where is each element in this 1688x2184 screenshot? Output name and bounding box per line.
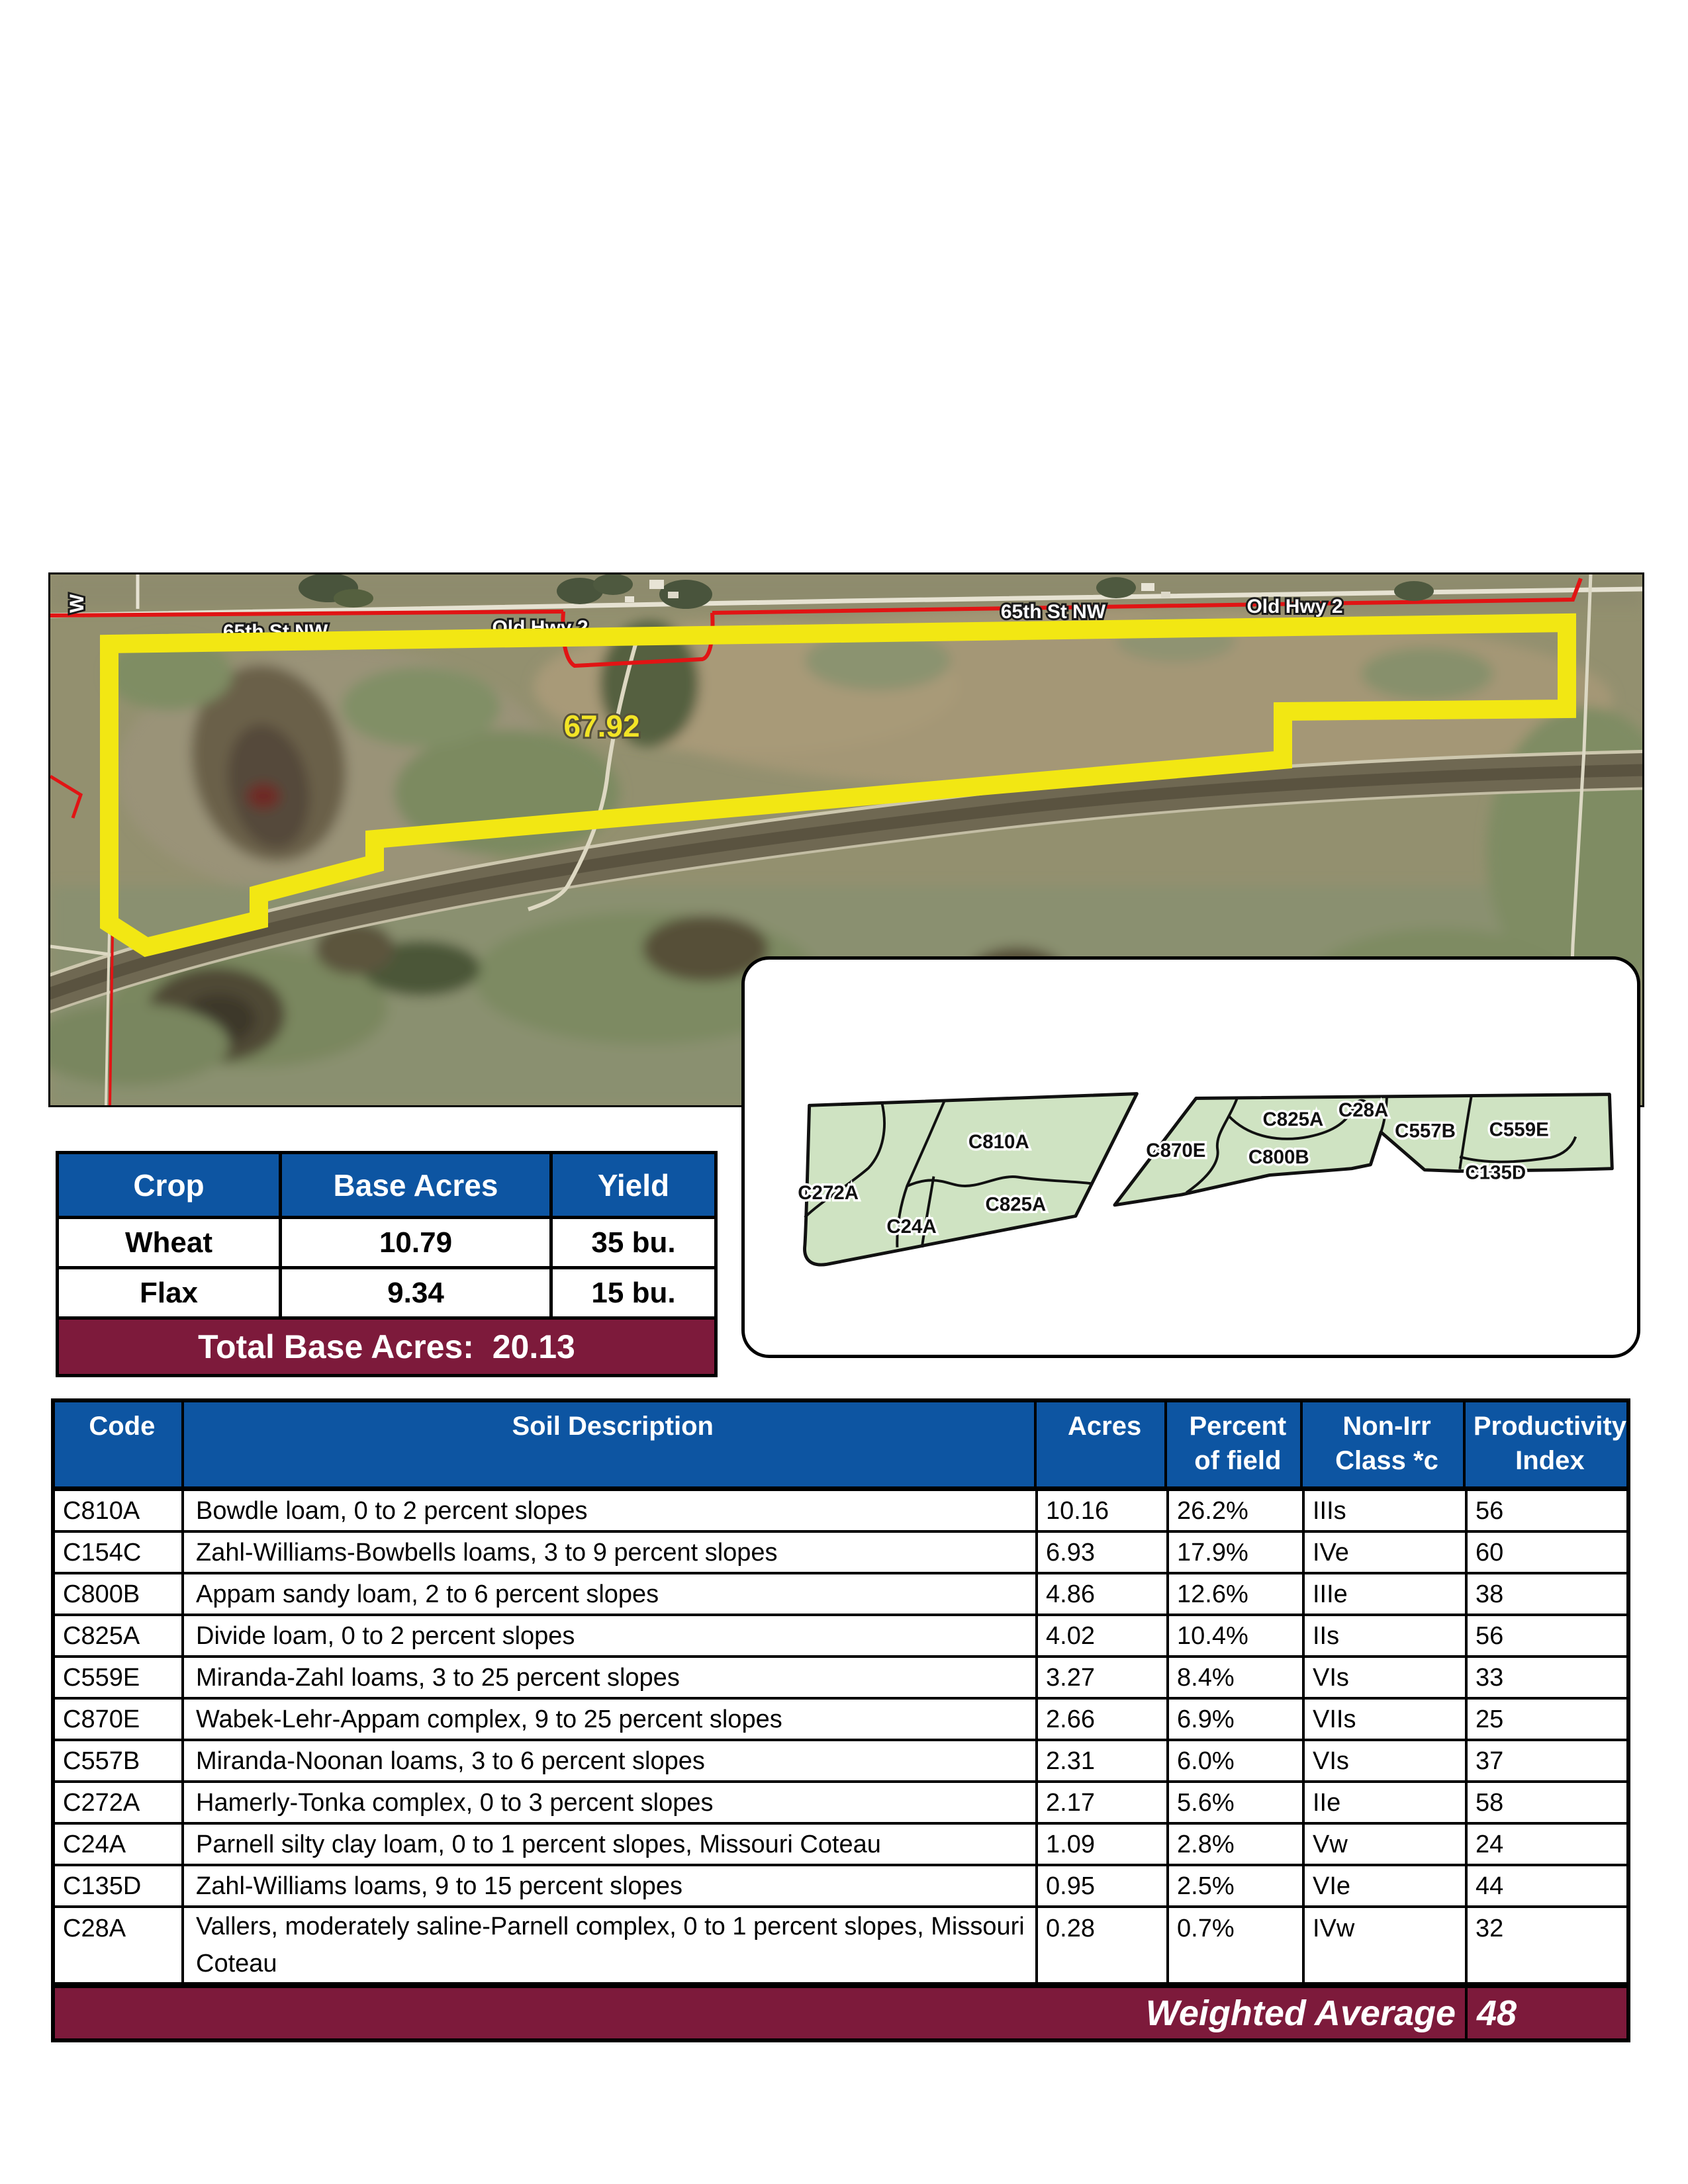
cell-nonirr-class: VIs <box>1305 1658 1468 1697</box>
map-label-c135d: C135D <box>1465 1161 1526 1183</box>
soil-header-percent: Percent of field <box>1167 1402 1303 1486</box>
cell-nonirr-class: IIIe <box>1305 1574 1468 1614</box>
cell-description: Appam sandy loam, 2 to 6 percent slopes <box>184 1574 1038 1614</box>
cell-acres: 4.02 <box>1038 1616 1169 1655</box>
cell-description: Wabek-Lehr-Appam complex, 9 to 25 percen… <box>184 1700 1038 1739</box>
cell-description: Miranda-Noonan loams, 3 to 6 percent slo… <box>184 1741 1038 1780</box>
cell-acres: 4.86 <box>1038 1574 1169 1614</box>
cell-description: Divide loam, 0 to 2 percent slopes <box>184 1616 1038 1655</box>
crop-table-header: Crop Base Acres Yield <box>59 1154 714 1219</box>
cell-productivity: 38 <box>1468 1574 1626 1614</box>
cell-code: C810A <box>55 1491 184 1530</box>
weighted-average-value: 48 <box>1468 1988 1626 2038</box>
cell-acres: 3.27 <box>1038 1658 1169 1697</box>
soil-header-acres: Acres <box>1037 1402 1168 1486</box>
cell-productivity: 56 <box>1468 1616 1626 1655</box>
cell-code: C28A <box>55 1908 184 1982</box>
weighted-average-bar: Weighted Average 48 <box>55 1985 1626 2038</box>
soil-header-description: Soil Description <box>184 1402 1037 1486</box>
crop-header-crop: Crop <box>59 1154 282 1216</box>
crop-row-flax: Flax 9.34 15 bu. <box>59 1269 714 1320</box>
cell-percent: 26.2% <box>1169 1491 1305 1530</box>
cell-acres: 0.28 <box>1038 1908 1169 1982</box>
cell-nonirr-class: IVe <box>1305 1533 1468 1572</box>
cell-percent: 0.7% <box>1169 1908 1305 1982</box>
cell-productivity: 32 <box>1468 1908 1626 1982</box>
cell-percent: 12.6% <box>1169 1574 1305 1614</box>
cell-description: Hamerly-Tonka complex, 0 to 3 percent sl… <box>184 1783 1038 1822</box>
cell-yield: 15 bu. <box>553 1269 714 1316</box>
cell-description: Zahl-Williams loams, 9 to 15 percent slo… <box>184 1866 1038 1905</box>
cell-acres: 2.17 <box>1038 1783 1169 1822</box>
crop-row-wheat: Wheat 10.79 35 bu. <box>59 1219 714 1269</box>
cell-productivity: 58 <box>1468 1783 1626 1822</box>
cell-acres: 10.16 <box>1038 1491 1169 1530</box>
cell-code: C559E <box>55 1658 184 1697</box>
cell-productivity: 33 <box>1468 1658 1626 1697</box>
cell-percent: 5.6% <box>1169 1783 1305 1822</box>
cell-productivity: 56 <box>1468 1491 1626 1530</box>
cell-base-acres: 9.34 <box>282 1269 553 1316</box>
cell-description: Bowdle loam, 0 to 2 percent slopes <box>184 1491 1038 1530</box>
map-label-c28a: C28A <box>1338 1099 1388 1121</box>
soil-table-row: C559E Miranda-Zahl loams, 3 to 25 percen… <box>55 1658 1626 1700</box>
cell-description: Vallers, moderately saline-Parnell compl… <box>184 1908 1038 1982</box>
cell-description: Zahl-Williams-Bowbells loams, 3 to 9 per… <box>184 1533 1038 1572</box>
cell-acres: 2.66 <box>1038 1700 1169 1739</box>
soil-table-row: C557B Miranda-Noonan loams, 3 to 6 perce… <box>55 1741 1626 1783</box>
soil-table-row: C135D Zahl-Williams loams, 9 to 15 perce… <box>55 1866 1626 1908</box>
total-base-acres-bar: Total Base Acres: 20.13 <box>59 1320 714 1374</box>
cell-percent: 6.0% <box>1169 1741 1305 1780</box>
map-label-c870e: C870E <box>1146 1140 1205 1161</box>
cell-crop: Wheat <box>59 1219 282 1266</box>
soil-header-productivity: Productivity Index <box>1466 1402 1626 1486</box>
map-label-c559e: C559E <box>1489 1119 1549 1141</box>
soil-table-row: C24A Parnell silty clay loam, 0 to 1 per… <box>55 1825 1626 1866</box>
cell-code: C272A <box>55 1783 184 1822</box>
cell-base-acres: 10.79 <box>282 1219 553 1266</box>
soil-table-row: C272A Hamerly-Tonka complex, 0 to 3 perc… <box>55 1783 1626 1825</box>
cell-acres: 1.09 <box>1038 1825 1169 1864</box>
cell-acres: 2.31 <box>1038 1741 1169 1780</box>
soil-description-table: Code Soil Description Acres Percent of f… <box>51 1398 1630 2042</box>
cell-code: C154C <box>55 1533 184 1572</box>
soil-map-inset: C272A C810A C24A C825A C870E C825A C28A … <box>741 956 1640 1358</box>
cell-percent: 10.4% <box>1169 1616 1305 1655</box>
weighted-average-label: Weighted Average <box>55 1988 1468 2038</box>
cell-code: C870E <box>55 1700 184 1739</box>
cell-nonirr-class: IIe <box>1305 1783 1468 1822</box>
cell-productivity: 24 <box>1468 1825 1626 1864</box>
cell-acres: 6.93 <box>1038 1533 1169 1572</box>
road-label-old-hwy-right: Old Hwy 2 <box>1246 596 1342 617</box>
map-label-c24a: C24A <box>886 1216 936 1238</box>
cell-percent: 8.4% <box>1169 1658 1305 1697</box>
soil-header-nonirr-class: Non-Irr Class *c <box>1303 1402 1466 1486</box>
cell-productivity: 25 <box>1468 1700 1626 1739</box>
crop-base-acres-table: Crop Base Acres Yield Wheat 10.79 35 bu.… <box>56 1151 718 1377</box>
soil-table-row: C870E Wabek-Lehr-Appam complex, 9 to 25 … <box>55 1700 1626 1741</box>
cell-nonirr-class: IVw <box>1305 1908 1468 1982</box>
field-acreage-label: 67.92 <box>563 709 639 743</box>
cell-nonirr-class: VIe <box>1305 1866 1468 1905</box>
map-label-c825a-left: C825A <box>986 1194 1047 1216</box>
cell-percent: 2.5% <box>1169 1866 1305 1905</box>
road-label-edge-partial: W <box>66 594 88 613</box>
soil-table-row: C825A Divide loam, 0 to 2 percent slopes… <box>55 1616 1626 1658</box>
cell-productivity: 44 <box>1468 1866 1626 1905</box>
cell-percent: 6.9% <box>1169 1700 1305 1739</box>
map-label-c810a: C810A <box>968 1131 1029 1153</box>
map-label-c825a-right: C825A <box>1262 1109 1323 1130</box>
report-page: 65th St NW Old Hwy 2 65th St NW Old Hwy … <box>0 0 1688 2184</box>
cell-nonirr-class: IIIs <box>1305 1491 1468 1530</box>
soil-map-art: C272A C810A C24A C825A C870E C825A C28A … <box>745 960 1637 1355</box>
crop-header-yield: Yield <box>553 1154 714 1216</box>
cell-code: C825A <box>55 1616 184 1655</box>
cell-nonirr-class: VIIs <box>1305 1700 1468 1739</box>
cell-productivity: 37 <box>1468 1741 1626 1780</box>
cell-description: Parnell silty clay loam, 0 to 1 percent … <box>184 1825 1038 1864</box>
cell-code: C800B <box>55 1574 184 1614</box>
soil-table-row: C28A Vallers, moderately saline-Parnell … <box>55 1908 1626 1985</box>
map-label-c557b: C557B <box>1395 1120 1456 1142</box>
soil-header-code: Code <box>55 1402 184 1486</box>
cell-acres: 0.95 <box>1038 1866 1169 1905</box>
cell-nonirr-class: VIs <box>1305 1741 1468 1780</box>
cell-percent: 17.9% <box>1169 1533 1305 1572</box>
road-label-65th-st-right: 65th St NW <box>1001 601 1106 623</box>
cell-code: C135D <box>55 1866 184 1905</box>
cell-code: C557B <box>55 1741 184 1780</box>
cell-crop: Flax <box>59 1269 282 1316</box>
cell-percent: 2.8% <box>1169 1825 1305 1864</box>
soil-table-row: C810A Bowdle loam, 0 to 2 percent slopes… <box>55 1491 1626 1533</box>
map-label-c800b: C800B <box>1248 1146 1309 1168</box>
soil-table-header: Code Soil Description Acres Percent of f… <box>55 1402 1626 1491</box>
cell-code: C24A <box>55 1825 184 1864</box>
cell-productivity: 60 <box>1468 1533 1626 1572</box>
cell-nonirr-class: IIs <box>1305 1616 1468 1655</box>
cell-nonirr-class: Vw <box>1305 1825 1468 1864</box>
cell-yield: 35 bu. <box>553 1219 714 1266</box>
soil-table-row: C154C Zahl-Williams-Bowbells loams, 3 to… <box>55 1533 1626 1574</box>
crop-header-base-acres: Base Acres <box>282 1154 553 1216</box>
map-label-c272a: C272A <box>798 1182 859 1204</box>
soil-table-row: C800B Appam sandy loam, 2 to 6 percent s… <box>55 1574 1626 1616</box>
cell-description: Miranda-Zahl loams, 3 to 25 percent slop… <box>184 1658 1038 1697</box>
